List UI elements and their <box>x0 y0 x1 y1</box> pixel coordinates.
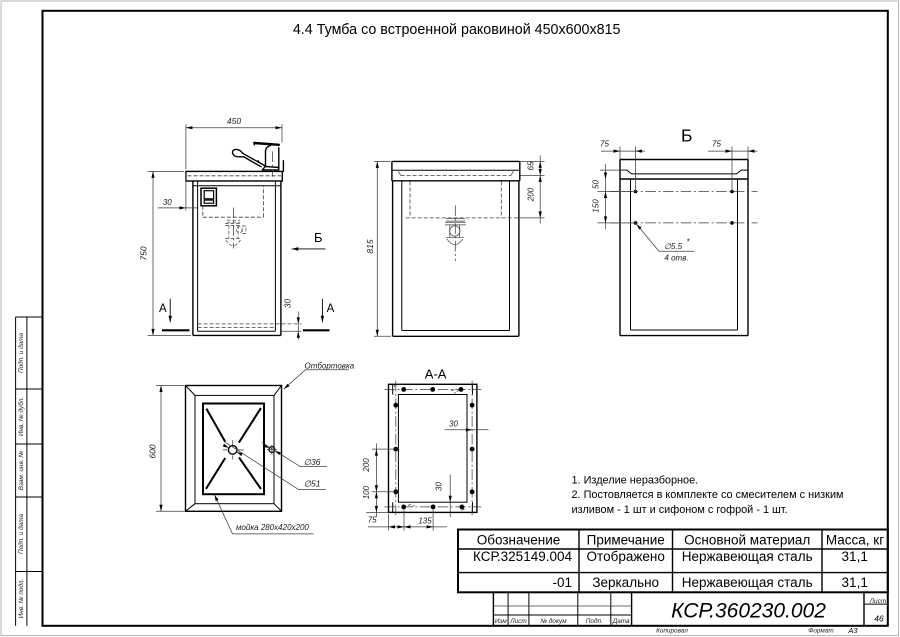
svg-text:Нержавеющая сталь: Нержавеющая сталь <box>682 575 813 590</box>
svg-text:Отображено: Отображено <box>587 549 665 564</box>
svg-text:А-А: А-А <box>425 367 447 382</box>
svg-text:200: 200 <box>527 187 536 202</box>
svg-text:100: 100 <box>362 485 371 499</box>
svg-text:∅5.5: ∅5.5 <box>664 242 683 251</box>
svg-text:600: 600 <box>147 444 157 458</box>
svg-text:Примечание: Примечание <box>587 533 665 548</box>
svg-text:31,1: 31,1 <box>842 575 868 590</box>
svg-text:КСР.325149.004: КСР.325149.004 <box>473 549 572 564</box>
svg-text:75: 75 <box>600 139 609 148</box>
svg-text:150: 150 <box>592 199 601 213</box>
svg-text:Дата: Дата <box>612 618 630 625</box>
svg-text:4.4 Тумба со встроенной ракови: 4.4 Тумба со встроенной раковиной 450х60… <box>293 22 621 38</box>
svg-text:200: 200 <box>362 458 371 473</box>
svg-text:2. Постовляется в комплекте со: 2. Постовляется в комплекте со смесителе… <box>572 489 844 501</box>
svg-text:∅36: ∅36 <box>304 457 321 467</box>
svg-text:Нержавеющая сталь: Нержавеющая сталь <box>682 549 813 564</box>
svg-text:Обозначение: Обозначение <box>477 533 561 548</box>
svg-text:Подп. и дата: Подп. и дата <box>17 514 25 554</box>
svg-text:135: 135 <box>418 516 432 525</box>
svg-text:65: 65 <box>527 161 536 170</box>
svg-text:Лист: Лист <box>869 598 887 605</box>
svg-text:4 отв.: 4 отв. <box>664 254 688 263</box>
svg-text:КСР.360230.002: КСР.360230.002 <box>671 600 826 623</box>
svg-text:30: 30 <box>435 482 444 491</box>
svg-text:75: 75 <box>368 515 377 524</box>
svg-text:815: 815 <box>365 239 375 253</box>
svg-text:Б: Б <box>681 126 692 146</box>
svg-text:1. Изделие неразборное.: 1. Изделие неразборное. <box>572 474 699 486</box>
svg-text:Отбортовка: Отбортовка <box>305 361 355 370</box>
svg-text:31,1: 31,1 <box>842 549 868 564</box>
svg-text:Копировал: Копировал <box>656 628 688 635</box>
svg-text:30: 30 <box>163 198 172 207</box>
svg-text:Масса, кг: Масса, кг <box>826 533 884 548</box>
svg-text:Взам. инв. №: Взам. инв. № <box>18 451 25 491</box>
svg-text:∅51: ∅51 <box>304 479 321 489</box>
svg-text:75: 75 <box>712 139 721 148</box>
svg-text:А: А <box>327 303 335 315</box>
svg-text:50: 50 <box>592 180 601 189</box>
svg-text:изливом - 1 шт и сифоном с гоф: изливом - 1 шт и сифоном с гофрой - 1 шт… <box>572 504 788 516</box>
svg-text:450: 450 <box>227 116 241 126</box>
svg-text:Зеркально: Зеркально <box>592 575 659 590</box>
svg-text:А3: А3 <box>847 626 858 635</box>
svg-text:Основной материал: Основной материал <box>684 533 810 548</box>
svg-text:№ докум: № докум <box>540 617 567 625</box>
svg-text:мойка 280х420х200: мойка 280х420х200 <box>236 523 309 532</box>
svg-text:30: 30 <box>449 420 458 429</box>
svg-text:Инв. № подл.: Инв. № подл. <box>17 579 25 619</box>
svg-text:Изм: Изм <box>495 618 507 625</box>
svg-text:30: 30 <box>284 299 293 308</box>
svg-text:Подп.: Подп. <box>586 617 603 625</box>
svg-text:46: 46 <box>874 614 884 624</box>
svg-text:Б: Б <box>314 230 323 245</box>
svg-text:Формат: Формат <box>808 628 834 635</box>
svg-text:-01: -01 <box>552 575 572 590</box>
svg-text:А: А <box>159 303 167 315</box>
svg-text:Подп. и дата: Подп. и дата <box>17 333 25 373</box>
svg-text:750: 750 <box>139 246 149 260</box>
svg-text:Инв. № дубл.: Инв. № дубл. <box>17 397 25 436</box>
svg-text:Лист: Лист <box>509 618 527 625</box>
